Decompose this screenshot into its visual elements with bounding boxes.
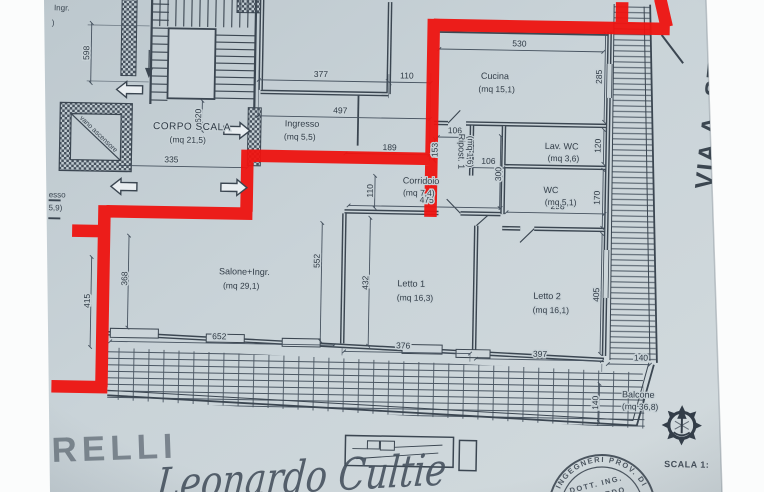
room-area-salone: (mq 29,1) bbox=[223, 280, 260, 291]
room-area-lav-wc: (mq 3,6) bbox=[548, 153, 580, 164]
dim-552: 552 bbox=[312, 253, 322, 268]
dim-106-corridoio: 106 bbox=[481, 156, 496, 166]
room-label-salone: Salone+Ingr. bbox=[219, 266, 270, 277]
scale-label: SCALA 1: bbox=[664, 459, 709, 470]
dim-140-w: 140 bbox=[634, 352, 649, 362]
dim-285: 285 bbox=[594, 69, 604, 84]
dim-530: 530 bbox=[512, 38, 527, 48]
room-area-corridoio: (mq 7,4) bbox=[403, 187, 435, 198]
dim-300: 300 bbox=[493, 167, 503, 182]
dim-110-door: 110 bbox=[365, 184, 375, 198]
dim-652: 652 bbox=[212, 331, 227, 341]
floorplan-photo: 598 620 335 377 110 497 189 530 285 106 … bbox=[0, 0, 764, 492]
room-area-corpo-scala: (mq 21,5) bbox=[169, 134, 206, 145]
partial-label-left-1: esso bbox=[49, 190, 67, 199]
dim-497: 497 bbox=[333, 105, 348, 115]
room-area-ripost: (mq 1,6) bbox=[465, 136, 476, 168]
dim-598: 598 bbox=[81, 45, 91, 60]
floorplan-drawing: 598 620 335 377 110 497 189 530 285 106 … bbox=[0, 0, 764, 492]
room-area-letto2: (mq 16,1) bbox=[533, 305, 570, 316]
dim-189: 189 bbox=[382, 142, 397, 152]
partial-label-left-2: 5,9) bbox=[48, 203, 62, 212]
room-label-lav-wc: Lav. WC bbox=[545, 141, 580, 152]
dim-140-h: 140 bbox=[590, 395, 600, 410]
room-label-letto1: Letto 1 bbox=[397, 278, 425, 288]
room-area-letto1: (mq 16,3) bbox=[397, 292, 434, 303]
room-label-ingresso: Ingresso bbox=[285, 118, 320, 129]
partial-label-top-2: ) bbox=[52, 18, 55, 27]
stair-landing bbox=[167, 28, 215, 99]
room-label-wc: WC bbox=[543, 185, 559, 195]
dim-432: 432 bbox=[360, 275, 370, 290]
partial-label-top-1: Ingr. bbox=[54, 3, 70, 12]
room-label-corpo-scala: CORPO SCALA bbox=[153, 121, 231, 133]
room-label-ripost: Ripost. 1 bbox=[456, 134, 467, 170]
dim-405: 405 bbox=[591, 287, 601, 302]
dim-368: 368 bbox=[119, 271, 129, 286]
dim-120: 120 bbox=[593, 138, 603, 153]
dim-335: 335 bbox=[164, 154, 179, 164]
room-label-cucina: Cucina bbox=[481, 71, 509, 81]
dim-153: 153 bbox=[429, 142, 439, 157]
dim-377: 377 bbox=[314, 69, 329, 79]
room-label-corridoio: Corridoio bbox=[403, 175, 440, 186]
room-area-ingresso: (mq 5,5) bbox=[284, 131, 316, 142]
dim-376: 376 bbox=[396, 340, 411, 350]
room-area-cucina: (mq 15,1) bbox=[478, 84, 515, 95]
dim-415: 415 bbox=[82, 293, 92, 308]
compass-rose-icon bbox=[662, 406, 701, 445]
room-area-wc: (mq 5,1) bbox=[545, 197, 577, 208]
room-label-letto2: Letto 2 bbox=[533, 291, 561, 301]
dim-397: 397 bbox=[533, 349, 548, 359]
dim-170: 170 bbox=[592, 190, 602, 205]
room-area-balcone: (mq 36,8) bbox=[622, 401, 659, 412]
room-label-balcone: Balcone bbox=[622, 389, 655, 400]
dim-110-top: 110 bbox=[400, 70, 414, 80]
